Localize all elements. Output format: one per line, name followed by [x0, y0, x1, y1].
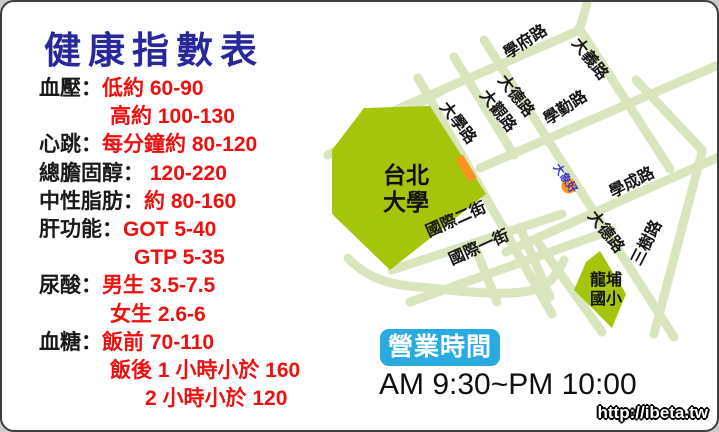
table-row-blood-pressure-high: 高約 100-130: [39, 103, 369, 131]
watermark-url: http://ibeta.tw: [598, 403, 708, 423]
table-row-liver-got: 肝功能：GOT 5-40: [39, 216, 369, 244]
table-row-triglycerides: 中性脂肪：約 80-160: [39, 188, 369, 216]
page-title: 健康指數表: [44, 20, 264, 74]
road-xuefu: [368, 4, 587, 122]
table-row-blood-sugar-2hr: 2 小時小於 120: [39, 385, 369, 413]
table-row-blood-pressure-low: 血壓：低約 60-90: [39, 75, 369, 103]
table-row-liver-gtp: GTP 5-35: [39, 244, 369, 272]
health-index-table: 血壓：低約 60-90 高約 100-130 心跳：每分鐘約 80-120 總膽…: [39, 75, 369, 413]
business-hours-time: AM 9:30~PM 10:00: [379, 368, 637, 402]
table-row-uric-acid-male: 尿酸：男生 3.5-7.5: [39, 272, 369, 300]
health-index-card: 台北 大學 龍埔 國小 學府路 大義路 大德路 大觀路 大學路 學勤路 學成路 …: [0, 0, 719, 432]
table-row-uric-acid-female: 女生 2.6-6: [39, 301, 369, 329]
table-row-heart-rate: 心跳：每分鐘約 80-120: [39, 131, 369, 159]
taipei-university-label-line1: 台北: [383, 162, 429, 188]
table-row-blood-sugar-1hr: 飯後 1 小時小於 160: [39, 357, 369, 385]
longpu-school-label-line1: 龍埔: [590, 270, 622, 289]
longpu-school-block: [574, 251, 626, 328]
table-row-blood-sugar-fasting: 血糖：飯前 70-110: [39, 329, 369, 357]
road-label-sanshu: 三樹路: [627, 216, 666, 268]
table-row-cholesterol: 總膽固醇： 120-220: [39, 160, 369, 188]
taipei-university-label-line2: 大學: [383, 189, 429, 215]
business-hours-badge: 營業時間: [380, 329, 500, 366]
longpu-school-label-line2: 國小: [590, 290, 622, 308]
